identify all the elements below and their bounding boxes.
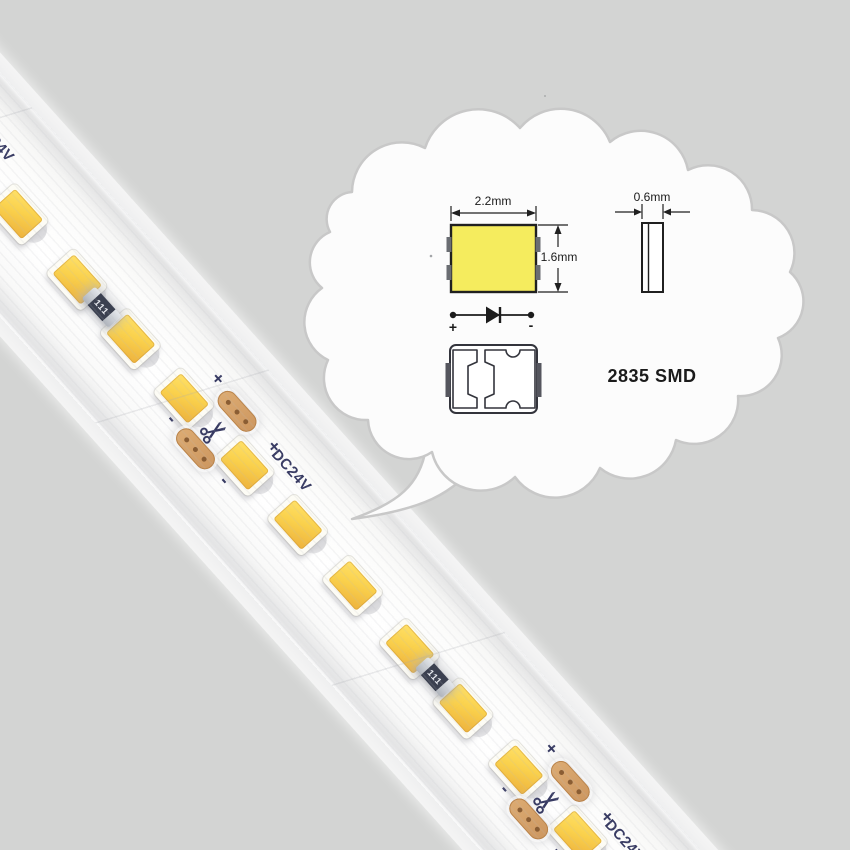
smd-bottom-view-drawing bbox=[446, 345, 542, 413]
callout-cloud-body bbox=[304, 109, 803, 498]
dust-speck-icon bbox=[544, 95, 546, 97]
dust-speck-icon bbox=[430, 255, 433, 258]
product-image-canvas: 111111+-DC24V+-+-DC24V+-+-DC24V bbox=[0, 0, 850, 850]
spec-callout-cloud bbox=[0, 0, 850, 850]
